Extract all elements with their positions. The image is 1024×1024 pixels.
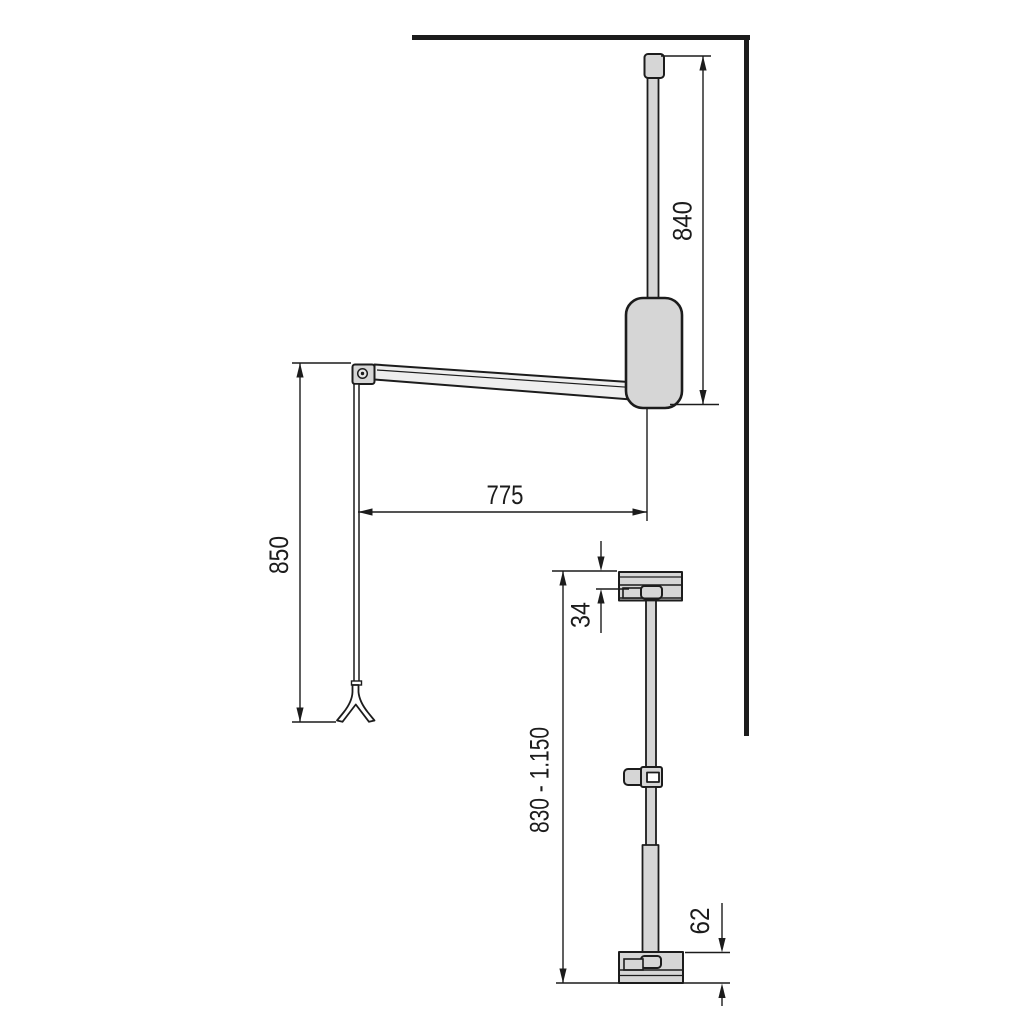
bottom-bracket-slider [624, 959, 643, 970]
dim-840-arrow-down-icon [699, 390, 706, 405]
dim-62-arrow-up-icon [718, 984, 725, 999]
telescopic-rod-middle [646, 787, 656, 846]
cabinet-side-edge [744, 35, 749, 736]
side-view [337, 54, 682, 722]
dimension-drawing: 840 775 850 [0, 0, 1024, 1024]
dimension-775: 775 [358, 409, 647, 521]
dim-850-label: 850 [264, 536, 294, 574]
pivot-screw-center [361, 372, 364, 375]
dim-830-1150-arrow-down-icon [559, 969, 566, 984]
lift-tube [648, 77, 659, 299]
front-view [619, 572, 683, 983]
lift-body [626, 298, 682, 408]
dimension-850: 850 [264, 363, 351, 722]
dim-34-arrow-down-icon [597, 557, 604, 572]
dim-775-label: 775 [487, 480, 524, 510]
dim-850-arrow-down-icon [296, 708, 303, 723]
top-bracket-rod-joint [641, 586, 662, 599]
handle-rod [354, 384, 359, 682]
drawing-canvas: 840 775 850 [0, 0, 1024, 1024]
telescopic-rod-upper [646, 601, 656, 770]
dim-840-arrow-up-icon [699, 56, 706, 71]
dimension-62: 62 [685, 903, 730, 1006]
cabinet-top-edge [412, 35, 750, 40]
dim-850-arrow-up-icon [296, 363, 303, 378]
dim-34-arrow-up-icon [597, 589, 604, 604]
dim-62-label: 62 [685, 908, 715, 935]
dim-775-arrow-right-icon [633, 508, 648, 515]
telescopic-rod-lower [643, 845, 659, 953]
handle-fork [337, 685, 375, 722]
dim-775-arrow-left-icon [358, 508, 373, 515]
dim-830-1150-arrow-up-icon [559, 571, 566, 586]
rod-clamp-slot [647, 773, 659, 783]
dim-840-label: 840 [668, 201, 698, 241]
lift-arm [375, 365, 651, 402]
bottom-bracket-rod-joint [641, 956, 661, 968]
dim-830-1150-label: 830 - 1.150 [525, 727, 555, 833]
lift-tube-cap [645, 54, 665, 78]
dim-34-label: 34 [566, 602, 596, 628]
dim-62-arrow-down-icon [718, 938, 725, 953]
